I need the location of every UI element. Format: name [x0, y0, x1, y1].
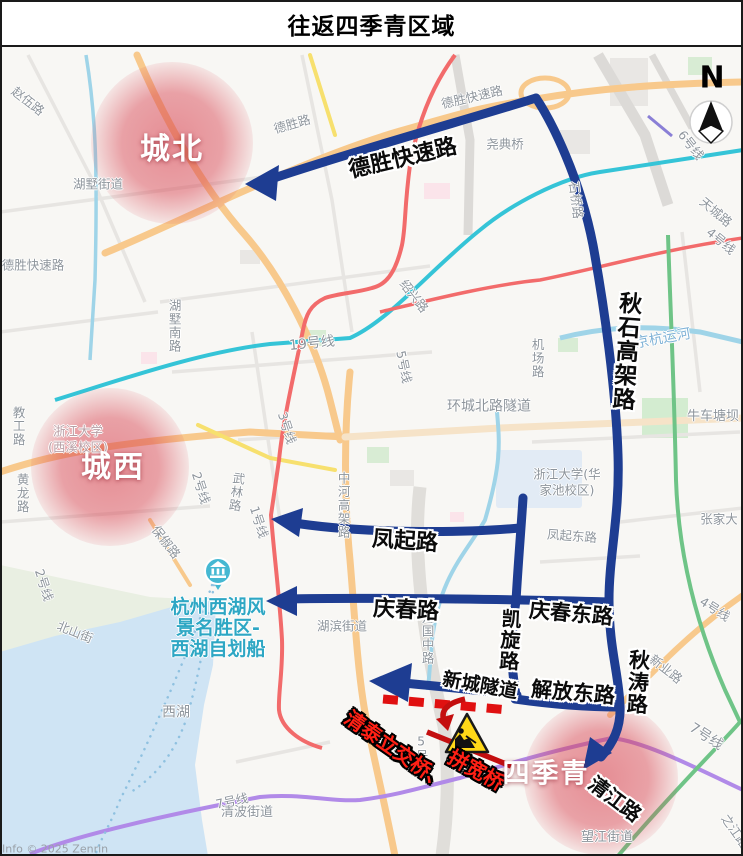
route-xincheng-tunnel: [392, 682, 517, 695]
page-title: 往返四季青区域: [288, 7, 456, 41]
museum-poi-icon: [205, 558, 231, 590]
construction-icon: [446, 714, 488, 752]
compass-icon: [690, 101, 732, 143]
map-page: 赵伍路 湖墅街道 德胜路 德胜快速路 尧典桥 石桥路 6号线 天城路 4号线 德…: [0, 0, 743, 856]
route-connector-north: [516, 498, 523, 601]
route-jiefang-east-road: [515, 699, 619, 707]
zone-circle-chengxi: [31, 388, 189, 546]
zone-circle-chengbei: [91, 62, 253, 224]
arrow-fengqi-west: [271, 508, 303, 537]
route-kaixuan-road: [512, 601, 516, 695]
title-bar: 往返四季青区域: [2, 2, 741, 47]
route-desheng-expressway: [268, 98, 536, 180]
map-graphics: [0, 0, 743, 856]
route-qingchun-road: [284, 598, 609, 602]
zone-circle-sijiqing: [524, 701, 678, 855]
arrow-to-chengbei: [245, 165, 279, 201]
